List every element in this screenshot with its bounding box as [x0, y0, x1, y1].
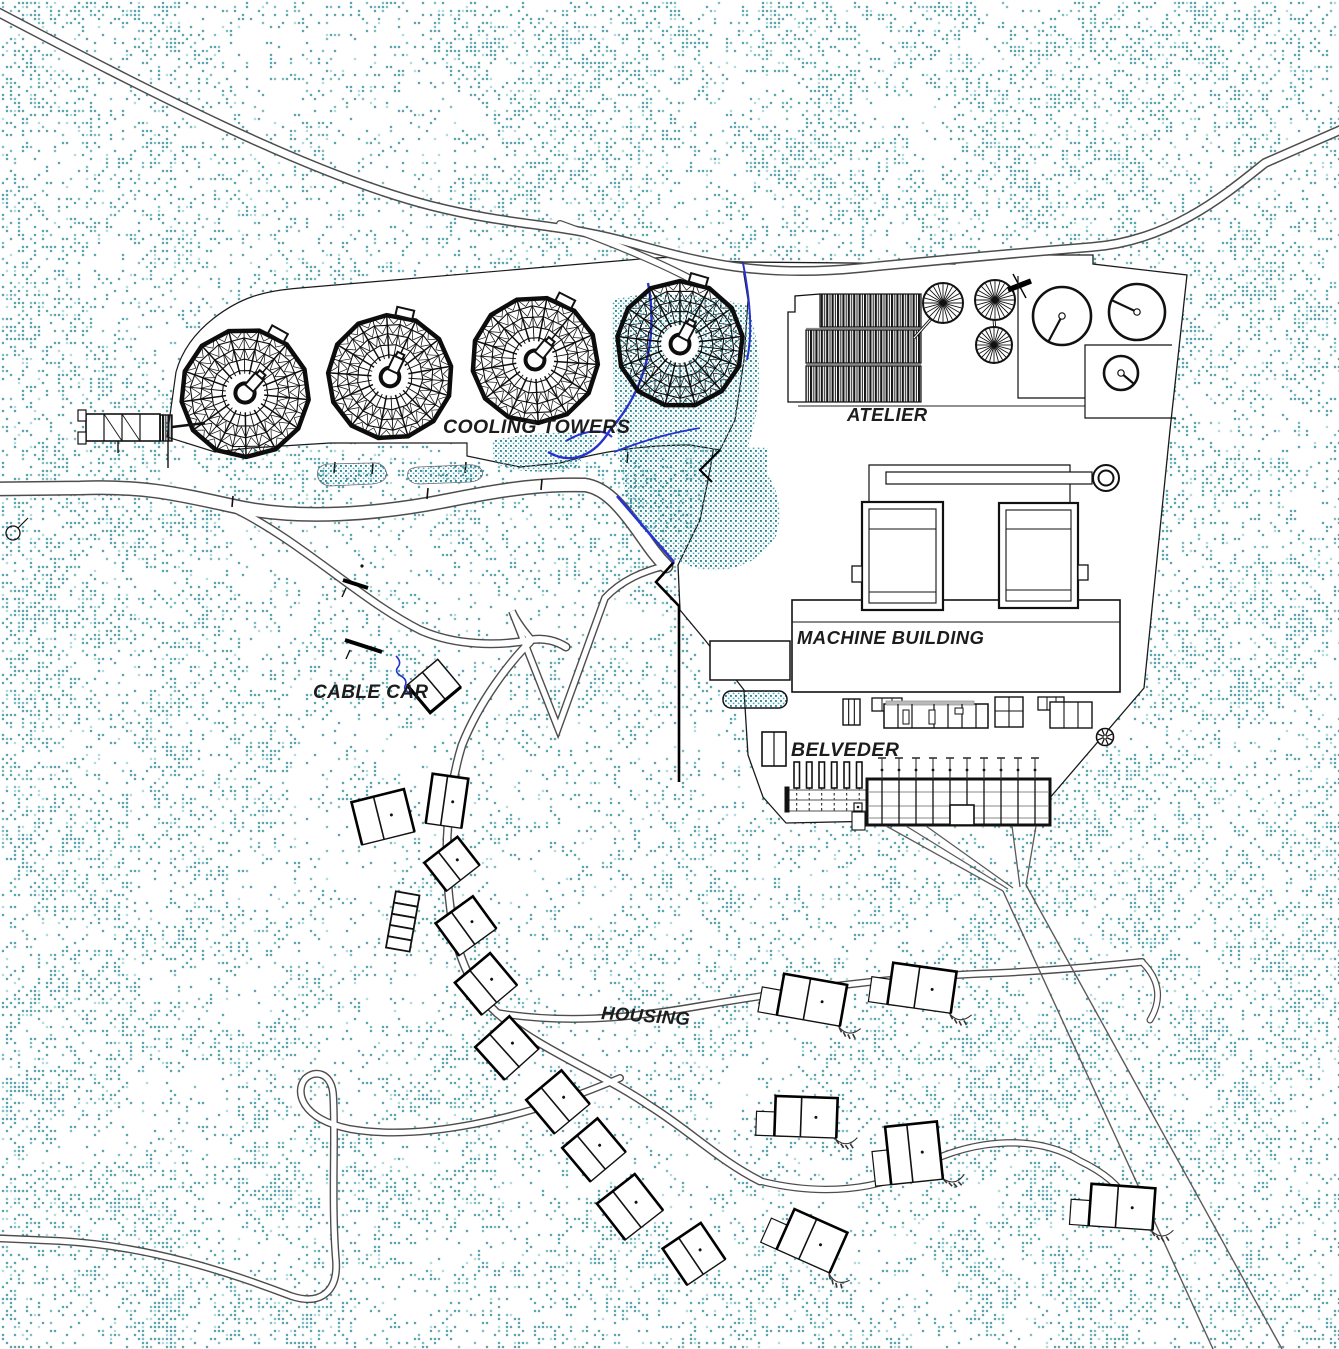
stairs	[386, 891, 420, 951]
storage-tank	[1109, 284, 1165, 340]
transmission-lines	[886, 826, 1282, 1349]
house	[424, 837, 479, 891]
house	[436, 896, 497, 955]
house	[597, 1174, 663, 1240]
label-atelier: ATELIER	[847, 404, 928, 426]
belveder-building	[762, 732, 786, 766]
house	[351, 789, 414, 845]
label-cable-car: CABLE CAR	[313, 682, 429, 704]
house	[562, 1118, 626, 1181]
label-belveder: BELVEDER	[791, 739, 899, 762]
ventilation-fan	[975, 280, 1015, 320]
house	[870, 1119, 966, 1195]
house	[756, 1202, 867, 1291]
house	[663, 1223, 726, 1285]
gear-icon	[1097, 729, 1114, 746]
house	[426, 774, 469, 829]
survey-marker	[6, 518, 28, 540]
house	[475, 1016, 539, 1079]
house	[755, 1095, 858, 1149]
house	[867, 960, 977, 1027]
label-cooling-towers: COOLING TOWERS	[443, 416, 630, 439]
storage-tank	[1104, 356, 1138, 390]
house	[526, 1070, 590, 1133]
storage-tank	[1033, 287, 1091, 345]
site-plan-svg	[0, 0, 1339, 1349]
site-plan: COOLING TOWERS ATELIER MACHINE BUILDING …	[0, 0, 1339, 1349]
ventilation-fan	[923, 283, 963, 323]
label-machine-building: MACHINE BUILDING	[797, 627, 984, 649]
ventilation-fan	[976, 327, 1012, 363]
